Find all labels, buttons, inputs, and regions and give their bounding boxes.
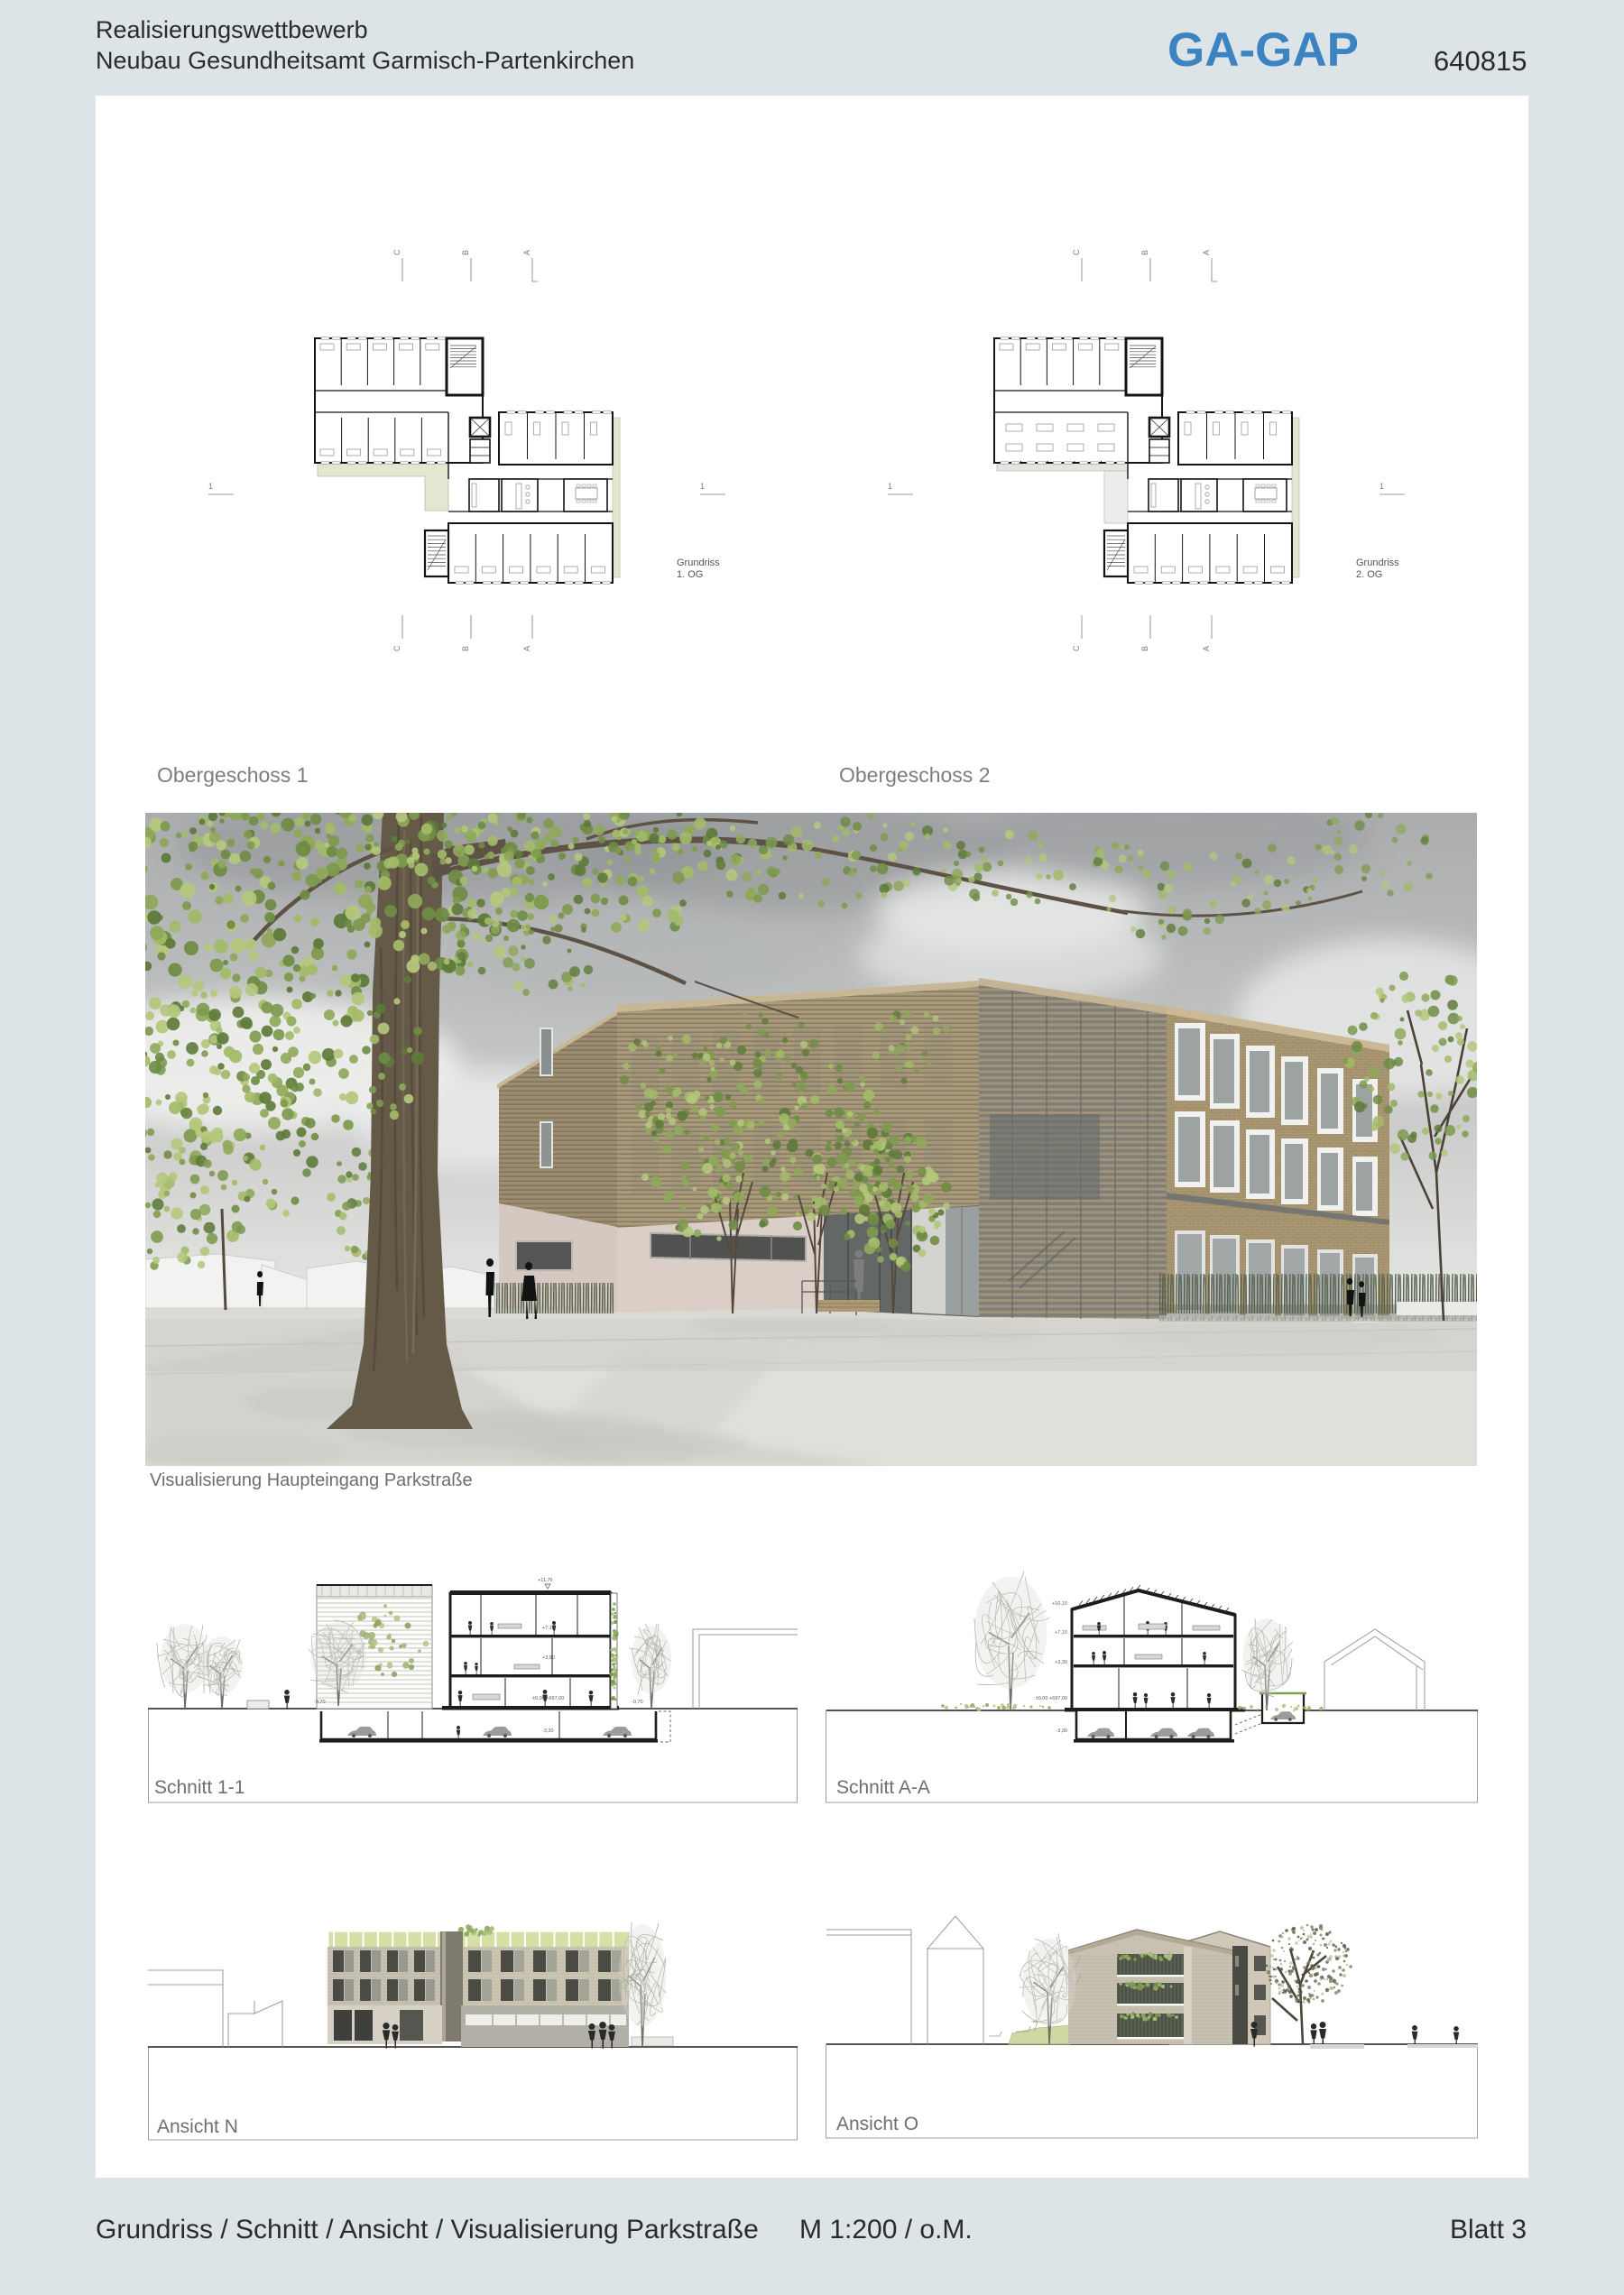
svg-text:A: A <box>1202 250 1211 255</box>
svg-text:B: B <box>1140 250 1149 255</box>
svg-text:-3,30: -3,30 <box>1056 1728 1067 1734</box>
svg-text:2. OG: 2. OG <box>1356 569 1382 580</box>
svg-text:+10,10: +10,10 <box>1052 1601 1067 1607</box>
svg-text:+3,90: +3,90 <box>542 1655 555 1661</box>
svg-text:Ansicht N: Ansicht N <box>157 2116 238 2137</box>
svg-text:C: C <box>392 249 401 255</box>
svg-text:-0,70: -0,70 <box>314 1700 326 1705</box>
svg-text:1: 1 <box>1379 482 1384 491</box>
svg-text:C: C <box>1072 249 1081 255</box>
svg-text:Schnitt A-A: Schnitt A-A <box>836 1777 930 1798</box>
svg-text:B: B <box>461 250 470 255</box>
svg-text:A: A <box>522 646 531 651</box>
svg-text:+11,76: +11,76 <box>538 1578 553 1583</box>
svg-text:B: B <box>1140 646 1149 651</box>
svg-text:1: 1 <box>700 482 705 491</box>
svg-text:±0,00 +697,00: ±0,00 +697,00 <box>1036 1696 1067 1701</box>
svg-text:C: C <box>1072 645 1081 651</box>
svg-text:-3,30: -3,30 <box>542 1728 554 1734</box>
svg-text:Schnitt 1-1: Schnitt 1-1 <box>154 1777 245 1798</box>
svg-text:+3,30: +3,30 <box>1055 1660 1067 1665</box>
svg-text:1: 1 <box>208 482 213 491</box>
svg-text:B: B <box>461 646 470 651</box>
svg-text:Grundriss: Grundriss <box>677 558 720 568</box>
svg-text:C: C <box>392 645 401 651</box>
svg-text:1. OG: 1. OG <box>677 569 703 580</box>
svg-text:Ansicht O: Ansicht O <box>836 2114 918 2134</box>
svg-text:+7,10: +7,10 <box>542 1626 555 1631</box>
svg-text:Grundriss: Grundriss <box>1356 558 1399 568</box>
svg-text:A: A <box>522 250 531 255</box>
svg-text:A: A <box>1202 646 1211 651</box>
svg-text:+7,10: +7,10 <box>1055 1630 1067 1636</box>
svg-text:±0,00 +697,00: ±0,00 +697,00 <box>532 1696 564 1701</box>
svg-text:1: 1 <box>888 482 892 491</box>
svg-text:-0,70: -0,70 <box>632 1700 643 1705</box>
